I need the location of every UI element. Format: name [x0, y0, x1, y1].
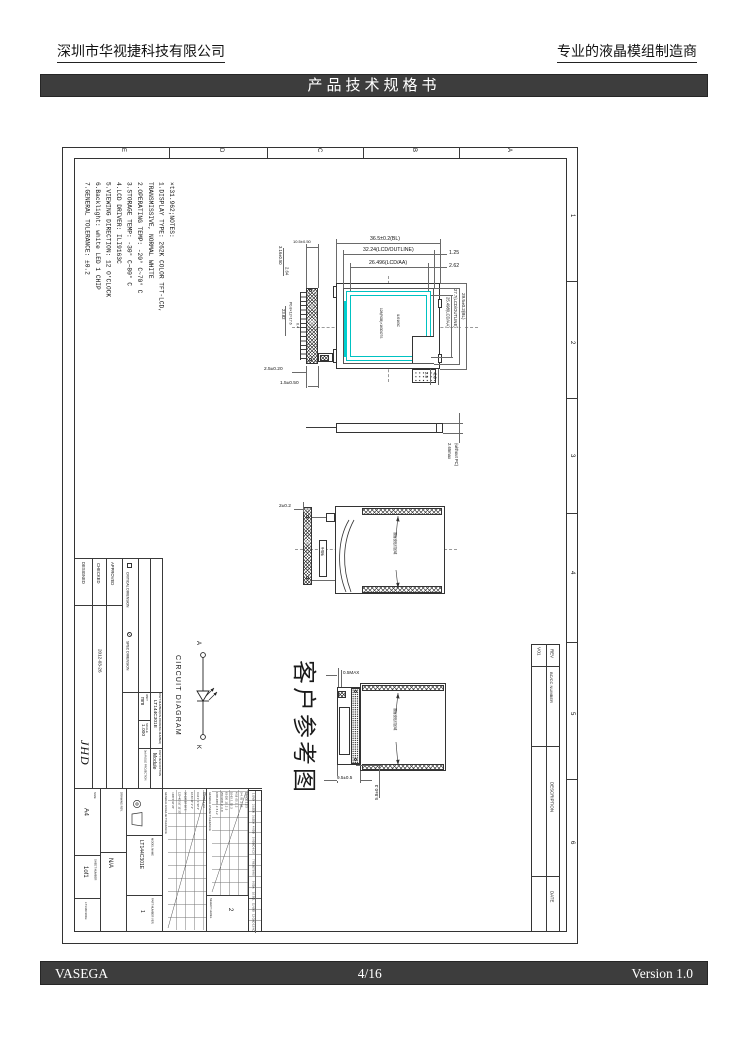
dim-line: [466, 283, 467, 369]
part-description-label: PART DESCRIPTION: [158, 750, 161, 788]
dim-line: [294, 509, 303, 510]
ext-line: [431, 295, 453, 296]
stiffener-window: [339, 707, 350, 755]
ext-line: [336, 239, 337, 283]
revision-table-line: [546, 644, 547, 932]
zone-tick: [363, 147, 364, 158]
ext-line: [338, 668, 339, 687]
dim-line: [350, 267, 447, 268]
flex-fold-hatch: [320, 355, 329, 361]
dim-line: [326, 675, 337, 676]
company-name-left: 深圳市华视捷科技有限公司: [57, 46, 225, 63]
titleblock-line: [126, 788, 127, 932]
ext-line: [440, 239, 441, 283]
zone-letter: A: [506, 148, 512, 152]
pin-row: 8 RS: [251, 870, 254, 879]
part-number-ver-value: 1: [139, 910, 144, 918]
third-angle-projection-icon: [129, 796, 145, 830]
step-line: [312, 517, 326, 518]
dim-line: [343, 254, 447, 255]
zone-letter: B: [411, 148, 417, 152]
scale-label: SCALE: [145, 723, 148, 741]
dim-label-2-5: 2.5±0.20: [264, 368, 283, 373]
ext-line: [431, 357, 453, 358]
component-strip: [351, 688, 360, 764]
tape-strip-top: [362, 685, 444, 691]
part-number-ver-label: PART NUMBER VER.: [150, 898, 153, 928]
ext-line: [341, 670, 342, 687]
spec-sheet-page: { "header": { "company_left": "深圳市华视捷科技有…: [0, 0, 750, 1061]
dim-label-bl-width: 36.5±0.2(BL): [369, 237, 401, 242]
ext-line: [440, 283, 467, 284]
approved-label: APPROVED: [110, 562, 114, 604]
titleblock-line: [138, 558, 139, 788]
zone-number: 6: [569, 841, 575, 844]
flex-curve: [331, 518, 355, 594]
pin-row: 10 SCL: [251, 892, 254, 901]
dim-label-1-5: 1.5±0.50: [280, 382, 299, 387]
part-number-label: PART NUMBER(CN-DRAWING NUMBER): [158, 693, 161, 747]
pin-row: 13 NC: [251, 924, 254, 932]
dim-label-0-9: 0.9: [433, 373, 437, 385]
titleblock-line: [106, 558, 107, 788]
bccc-number-header: BC/CC NUMBER: [549, 672, 553, 740]
revision-table-line: [531, 666, 560, 667]
ext-line: [443, 423, 463, 424]
dim-line: [283, 248, 284, 276]
ext-line: [430, 369, 431, 385]
scale-value: 1.000: [139, 724, 144, 744]
fpc-connector-strip: [306, 288, 318, 364]
rev-header: REV: [549, 649, 553, 663]
stiffener-label: 补强板: [321, 547, 324, 571]
module-step-tab-top: [333, 286, 337, 298]
led-anode-label: A: [195, 641, 201, 649]
titleblock-line: [75, 605, 122, 606]
dim-line: [360, 780, 372, 781]
unit-value: mm: [139, 697, 144, 709]
size-value: A4: [82, 808, 89, 822]
dim-line: [292, 372, 306, 373]
dim-label-0-4: 0.4: [295, 323, 299, 334]
dim-label-2-9: 2.9: [424, 372, 428, 384]
dim-label-bl-height: 29.5±0.2(BL): [461, 293, 466, 359]
zone-letter: E: [120, 148, 126, 152]
dim-label-aa-width: 26.496(LCD/AA): [368, 261, 408, 266]
dim-label-outline-width: 32.24(LCD/OUTLINE): [362, 248, 415, 253]
zone-tick: [459, 147, 460, 158]
ext-line: [443, 433, 463, 434]
dim-label-0-5max: 0.5MAX: [343, 671, 359, 676]
titleblock-line: [126, 895, 162, 896]
checked-label: CHECKED: [96, 563, 100, 603]
dim-label-fpc-width: 10.5±0.50: [293, 240, 311, 244]
titleblock-line: [122, 558, 123, 788]
rev-value: V01: [535, 647, 540, 663]
ref-view-outline: [360, 683, 446, 771]
dim-label-thickness: 2.65max (without PC): [446, 443, 460, 483]
zone-tick: [169, 147, 170, 158]
dim-label-1-25: 1.25: [449, 251, 459, 256]
model-name-value: LT144C301E: [138, 840, 143, 892]
small-hatch-block: [338, 691, 346, 698]
zone-tick: [567, 398, 578, 399]
circuit-diagram-title: CIRCUIT DIAGRAM: [174, 655, 181, 747]
display-resolution-note: 128(RGB)×160DOTS: [379, 308, 382, 348]
ext-line: [356, 765, 381, 766]
ext-line: [318, 244, 319, 288]
critical-dimension-label: CRITICAL DIMENSION: [125, 572, 128, 630]
side-profile: [336, 423, 443, 433]
description-header: DESCRIPTION: [549, 782, 553, 838]
date-header: DATE: [549, 891, 553, 915]
edge-castellation: [438, 299, 442, 308]
pin-table: 1 GND 2 LEDK 3 LEDA 4 VDD 5 VDDIO 6 CS 7…: [248, 790, 262, 932]
model-name-label: MODEL NAME: [150, 838, 153, 864]
side-profile-divider: [436, 423, 437, 433]
footer-page-number: 4/16: [358, 962, 382, 984]
led-symbol: [192, 650, 220, 742]
ext-line: [343, 250, 344, 288]
dim-label-2: 2±0.2: [279, 505, 291, 510]
pin-row: 3 LEDA: [251, 815, 254, 824]
dim-line: [459, 288, 460, 364]
ext-line: [440, 369, 467, 370]
titleblock-line: [100, 788, 101, 932]
part-number-value: LT144C301E: [151, 700, 156, 744]
pin-row: 7 RESET: [251, 859, 254, 868]
pin-row: 5 VDDIO: [251, 837, 254, 846]
table-diagonal-marks: [162, 788, 248, 932]
pin-row: 9 SDA: [251, 881, 254, 890]
ext-line: [360, 771, 361, 783]
zone-tick: [567, 779, 578, 780]
fpc-hole: [306, 576, 309, 579]
ext-line: [434, 364, 460, 365]
pin-row: 11 VDD: [251, 903, 254, 912]
tape-area-note: 双面胶贴付区域: [393, 708, 396, 748]
revision-table-line: [531, 876, 560, 877]
ext-line: [303, 502, 304, 512]
dim-line: [308, 386, 318, 387]
dim-label-9-5: 9.5±0.5: [337, 776, 352, 781]
fpc-alignment-hole: [309, 358, 312, 361]
drawing-rev-value: N/A: [107, 858, 113, 878]
back-fpc-strip: [303, 507, 312, 585]
document-code: LT144C301E: [84, 902, 87, 930]
dim-line: [306, 247, 318, 248]
zone-number: 3: [569, 454, 575, 457]
zone-number: 1: [569, 214, 575, 217]
titleblock-line: [92, 558, 93, 788]
ext-line: [434, 250, 435, 288]
part-description-value: Module: [151, 753, 156, 785]
zone-tick: [267, 147, 268, 158]
dim-line: [336, 243, 440, 244]
dim-line: [459, 413, 460, 443]
footer-brand: VASEGA: [55, 962, 108, 984]
led-cathode-label: K: [195, 745, 201, 753]
titleblock-line: [75, 558, 162, 559]
edge-castellation: [438, 354, 442, 363]
designer-signature: JHD: [79, 740, 91, 784]
ext-line: [318, 366, 319, 388]
flex-tail-line: [306, 427, 336, 428]
ext-line: [438, 369, 439, 385]
titleblock-line: [138, 720, 150, 721]
driver-bonding-bar: [344, 301, 347, 357]
projection-angle-label: 3rd ANGLE PROJECTION: [143, 750, 146, 786]
spec-dimension-icon: [127, 632, 132, 637]
fpc-alignment-hole: [309, 289, 312, 292]
dim-label-pitch: P0.8×12=17.6: [288, 302, 292, 346]
dim-line: [324, 780, 337, 781]
pin-row: 4 VDD: [251, 826, 254, 835]
tape-area-note: 双面胶贴付区域: [393, 532, 396, 572]
spec-dimension-label: SPEC DIMENSION: [125, 641, 128, 691]
dim-line: [451, 295, 452, 357]
zone-tick: [567, 642, 578, 643]
zone-letter: C: [316, 148, 322, 152]
drawing-notes: ×t31.962;NOTES: 1.DISPLAY TYPE: 262K COL…: [84, 182, 176, 446]
pin-row: 12 GND: [251, 914, 254, 923]
titleblock-line: [126, 835, 162, 836]
company-slogan-right: 专业的液晶模组制造商: [557, 46, 697, 63]
footer-version: Version 1.0: [632, 962, 694, 984]
zone-number: 5: [569, 712, 575, 715]
title-banner: 产品技术规格书: [40, 74, 708, 97]
pin-row: 6 CS: [251, 848, 254, 857]
pin-table-divider: [255, 791, 256, 933]
dim-label-aa-height: 25.498(LCD/AA): [446, 297, 450, 355]
dim-line: [285, 306, 286, 336]
designed-label: DESIGNED: [81, 562, 85, 604]
titleblock-line: [75, 898, 100, 899]
dim-label-2-64: 2.64: [285, 267, 289, 281]
dim-label-outline-height: 27.7(LCD/OUTLINE): [453, 289, 457, 363]
critical-dimension-icon: [127, 563, 132, 568]
ext-line: [306, 244, 307, 288]
fpc-hole: [306, 515, 309, 518]
size-label: SIZE: [93, 792, 96, 804]
driver-ic-note: ILI9163C: [396, 314, 399, 342]
module-step-tab-bottom: [333, 349, 337, 363]
sheet-number-label: SHEET NUMBER: [93, 859, 96, 891]
pin-row: 1 GND: [251, 793, 254, 802]
titleblock-line: [122, 692, 162, 693]
corner-step-notch: [412, 336, 434, 363]
titleblock-line: [100, 852, 126, 853]
titleblock-line: [75, 855, 100, 856]
zone-tick: [567, 513, 578, 514]
footer-banner: VASEGA 4/16 Version 1.0: [40, 961, 708, 985]
strip-hole: [354, 758, 357, 761]
titleblock-line: [138, 748, 162, 749]
drawing-rev-label: DRAWING REV.: [119, 792, 122, 824]
unit-label: UNIT: [145, 694, 148, 708]
dim-label-3-16: 3.16±0.50: [278, 246, 282, 274]
dim-label-5-8: 5.8±0.3: [375, 785, 380, 800]
strip-hole: [354, 690, 357, 693]
ext-line: [306, 366, 307, 388]
zone-letter: D: [218, 148, 224, 152]
zone-tick: [567, 281, 578, 282]
zone-number: 2: [569, 341, 575, 344]
revision-table-line: [531, 746, 560, 747]
dim-label-2-62: 2.62: [449, 264, 459, 269]
zone-number: 4: [569, 571, 575, 574]
sheet-number-value: 1of1: [82, 866, 88, 886]
page-title: 产品技术规格书: [307, 78, 440, 94]
design-date: 2012-03-26: [97, 649, 102, 687]
customer-reference-label: 客户参考图: [291, 660, 315, 796]
pin-row: 2 LEDK: [251, 804, 254, 813]
